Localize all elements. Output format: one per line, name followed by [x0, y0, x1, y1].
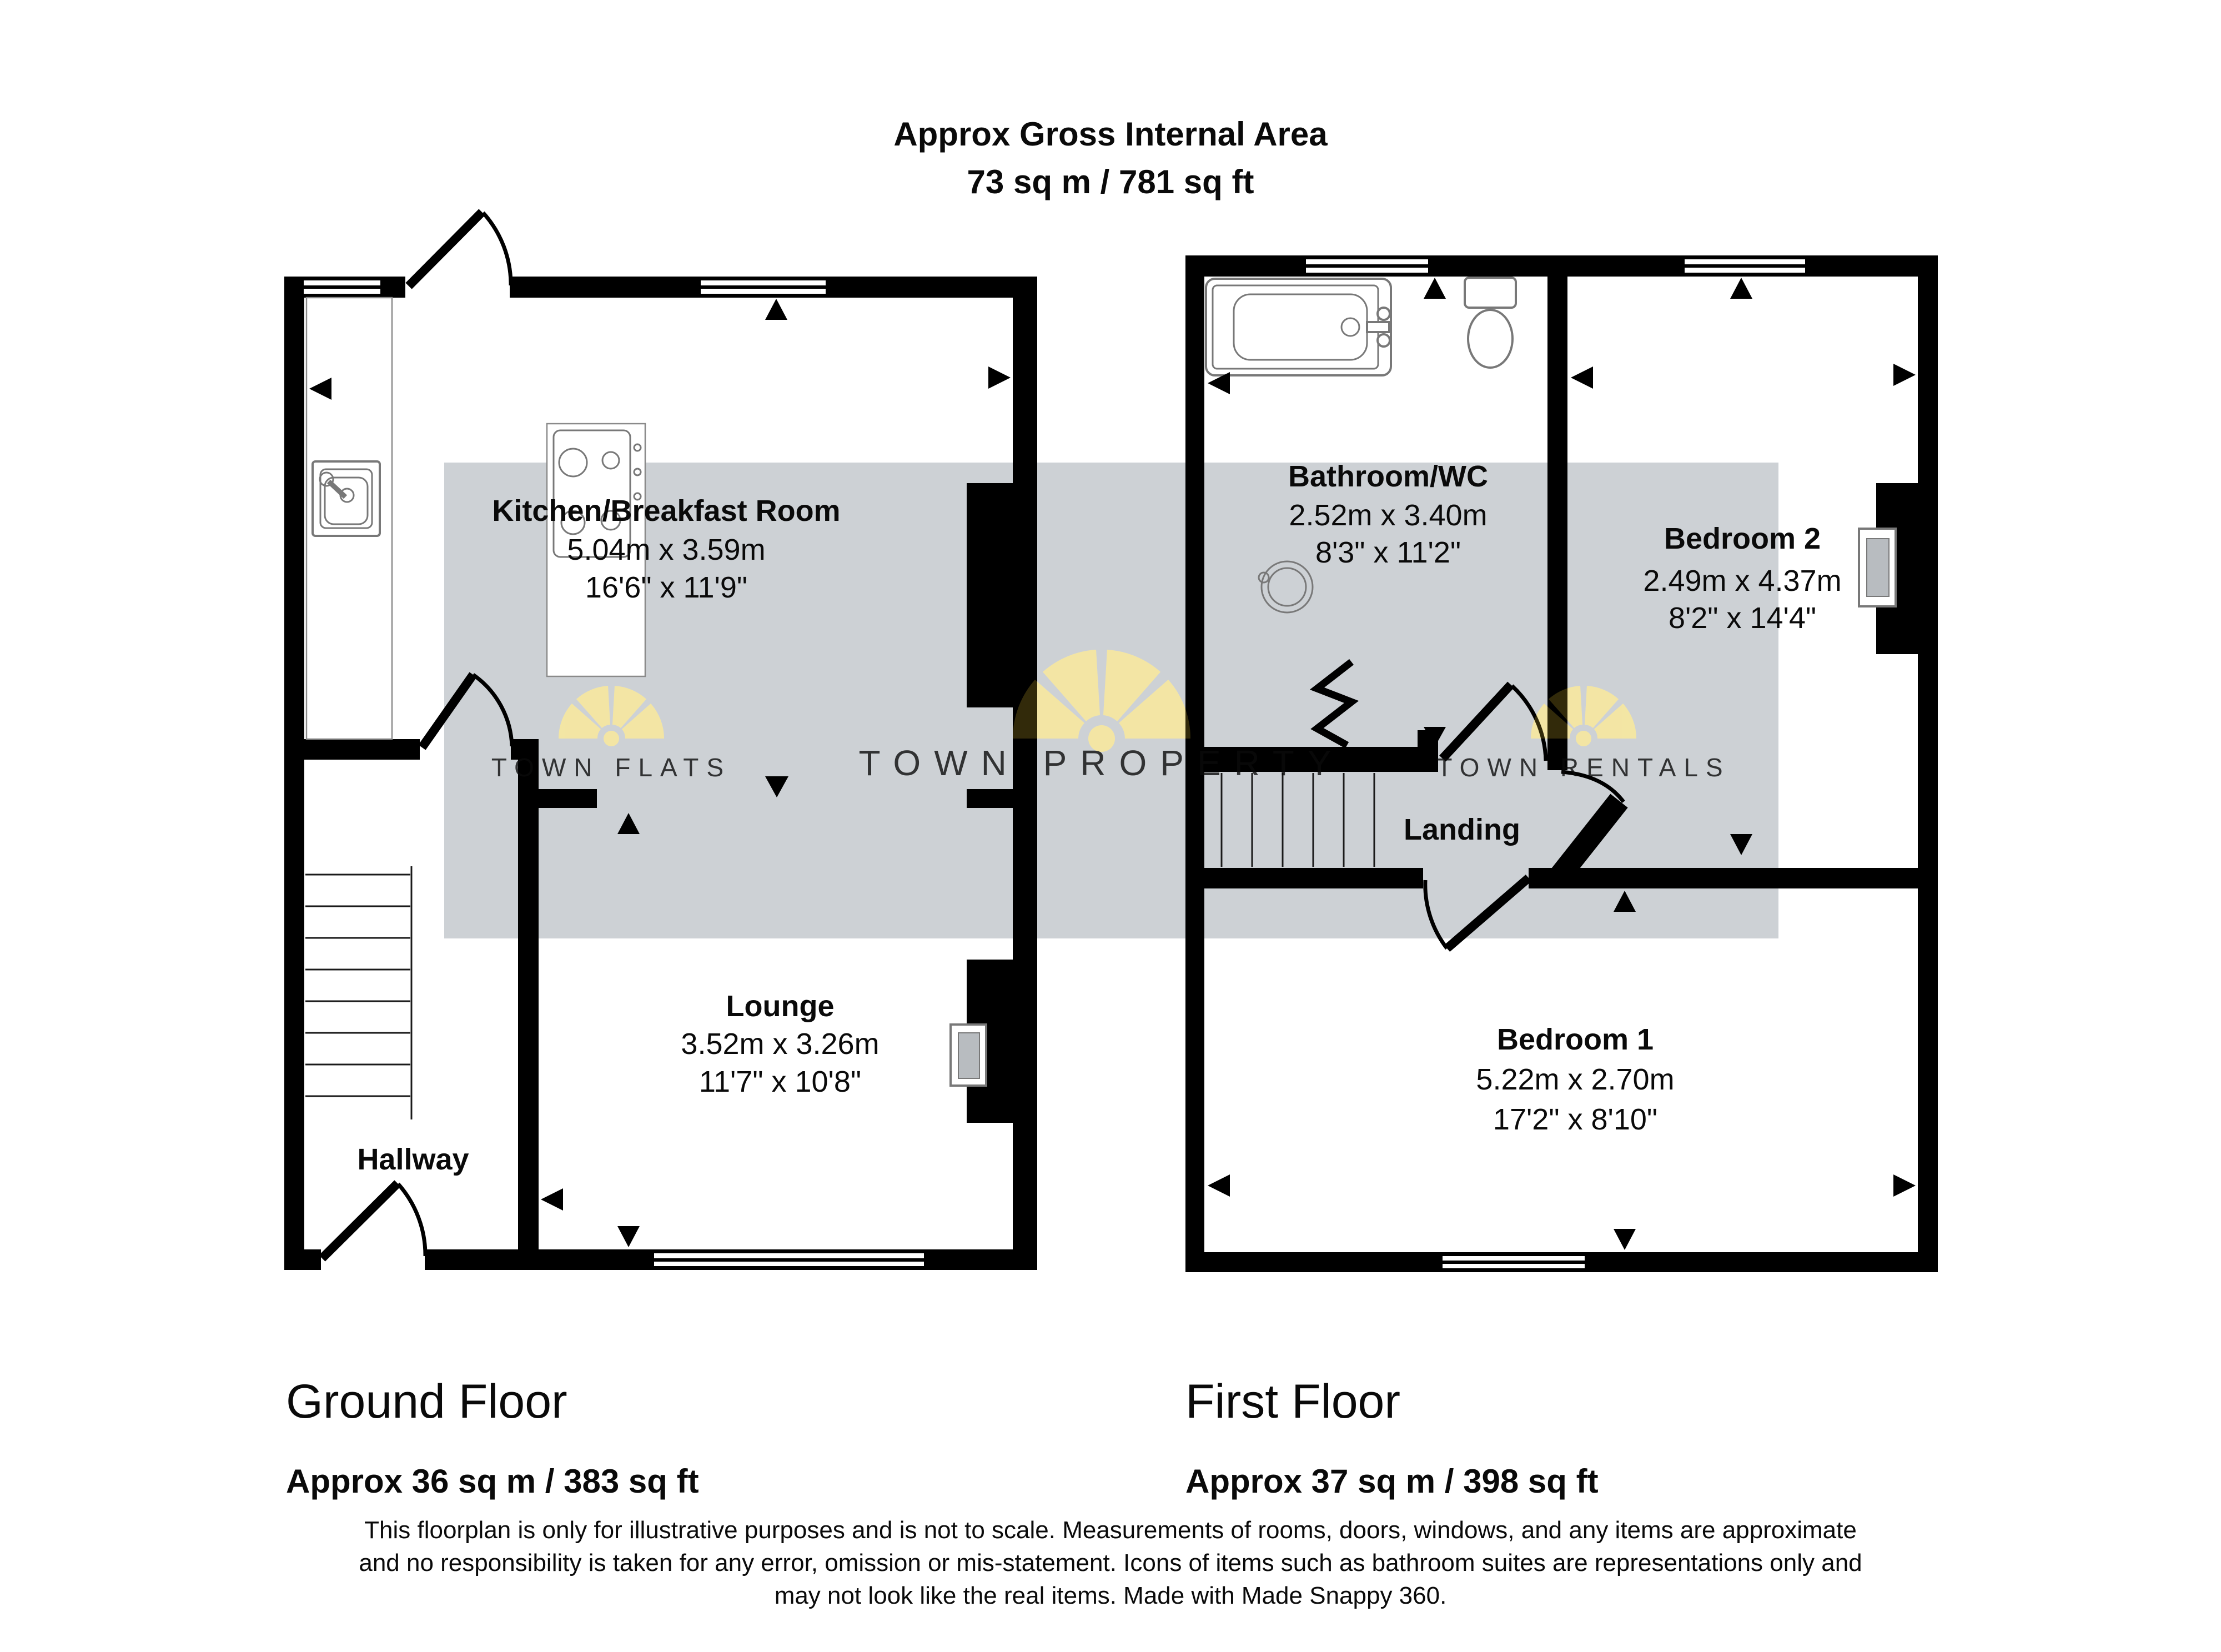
kitchen-metric: 5.04m x 3.59m [567, 533, 765, 566]
kitchen-window-left [304, 277, 380, 298]
landing-label: Landing [1404, 813, 1520, 846]
floorplan-page: TOWN FLATS TOWN PROPERTY TOWN RENTALS Ki… [0, 0, 2221, 1652]
bedroom2-window [1685, 255, 1805, 277]
ground-floor-area: Approx 36 sq m / 383 sq ft [286, 1463, 699, 1500]
disclaimer-line2: and no responsibility is taken for any e… [359, 1549, 1862, 1576]
arrow-down-icon [617, 1226, 640, 1247]
kitchen-imperial: 16'6" x 11'9" [585, 571, 747, 604]
watermark-town-rentals: TOWN RENTALS [1436, 753, 1730, 782]
kitchen-chimney-breast [967, 483, 1013, 707]
disclaimer-line1: This floorplan is only for illustrative … [364, 1517, 1857, 1544]
bedroom1-window [1443, 1252, 1585, 1272]
kitchen-sink-icon [313, 461, 380, 536]
bathroom-imperial: 8'3" x 11'2" [1315, 536, 1461, 569]
first-floor-area: Approx 37 sq m / 398 sq ft [1185, 1463, 1599, 1500]
kitchen-external-door [409, 212, 511, 286]
page-title: Approx Gross Internal Area [893, 116, 1328, 153]
bedroom2-label: Bedroom 2 [1664, 522, 1821, 555]
bedroom2-fireplace-icon [1859, 529, 1896, 606]
hallway-label: Hallway [357, 1143, 469, 1176]
arrow-right-icon [1893, 364, 1916, 386]
ground-floor-stairs [305, 866, 411, 1119]
arrow-up-icon [765, 299, 787, 320]
toilet-icon [1465, 278, 1516, 368]
lounge-metric: 3.52m x 3.26m [681, 1027, 879, 1061]
arrow-right-icon [1893, 1174, 1916, 1197]
bathroom-window [1306, 255, 1428, 277]
kitchen-label: Kitchen/Breakfast Room [492, 494, 840, 528]
page-title-area: 73 sq m / 781 sq ft [967, 163, 1254, 200]
kitchen-window-right [701, 277, 826, 298]
arrow-up-icon [1424, 278, 1446, 299]
bedroom1-label: Bedroom 1 [1497, 1023, 1654, 1056]
arrow-left-icon [1571, 366, 1593, 389]
lounge-window [654, 1249, 924, 1270]
bedroom2-imperial: 8'2" x 14'4" [1669, 601, 1816, 635]
bathtub-icon [1206, 279, 1391, 375]
bathroom-label: Bathroom/WC [1288, 460, 1488, 493]
disclaimer-line3: may not look like the real items. Made w… [775, 1582, 1447, 1609]
floorplan-canvas: TOWN FLATS TOWN PROPERTY TOWN RENTALS Ki… [0, 0, 2221, 1652]
first-floor-caption: First Floor [1185, 1375, 1400, 1428]
lounge-label: Lounge [726, 990, 835, 1023]
arrow-right-icon [988, 366, 1011, 389]
lounge-fireplace-icon [951, 1025, 986, 1086]
arrow-left-icon [541, 1188, 563, 1211]
lounge-imperial: 11'7" x 10'8" [699, 1065, 861, 1098]
arrow-left-icon [1208, 1174, 1230, 1197]
bedroom1-metric: 5.22m x 2.70m [1476, 1063, 1674, 1096]
ground-floor-caption: Ground Floor [286, 1375, 567, 1428]
watermark-town-flats: TOWN FLATS [491, 753, 731, 782]
arrow-down-icon [1614, 1229, 1636, 1250]
bedroom2-metric: 2.49m x 4.37m [1643, 564, 1841, 597]
arrow-up-icon [1730, 278, 1752, 299]
bathroom-metric: 2.52m x 3.40m [1289, 499, 1487, 532]
watermark-town-property: TOWN PROPERTY [858, 743, 1344, 783]
front-door [322, 1183, 425, 1258]
bedroom1-imperial: 17'2" x 8'10" [1493, 1103, 1657, 1136]
